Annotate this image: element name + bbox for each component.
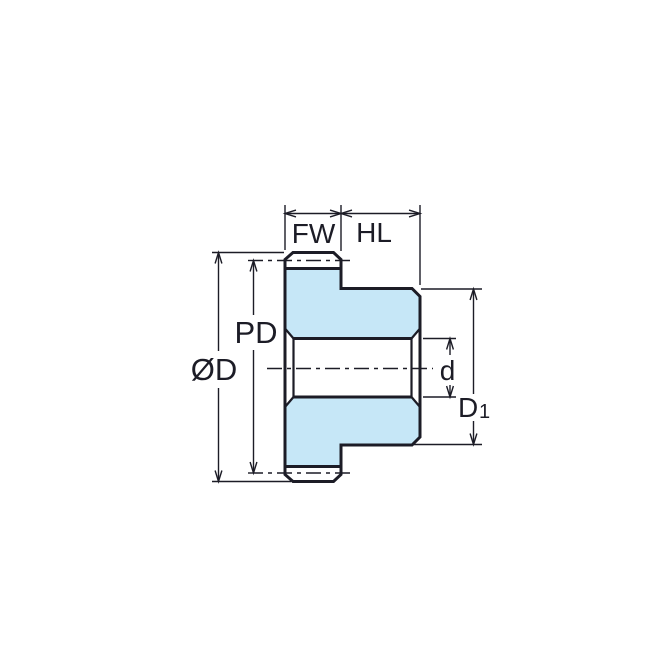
gear-cross-section <box>248 253 433 482</box>
gear-upper-body-fill <box>285 269 420 339</box>
label-fw: FW <box>292 218 336 249</box>
gear-dimension-diagram: FW HL ØD PD d D 1 <box>0 0 670 670</box>
label-od: ØD <box>191 352 238 387</box>
bore <box>285 329 420 408</box>
dimension-d: d <box>423 339 456 398</box>
dimension-pd: PD <box>234 261 277 474</box>
gear-lower-body-fill <box>285 397 420 467</box>
label-d: d <box>440 355 456 386</box>
dimension-od: ØD <box>191 253 291 482</box>
label-pd: PD <box>234 315 277 350</box>
label-d1-subscript: 1 <box>479 401 490 423</box>
label-hl: HL <box>356 217 392 248</box>
label-d1-base: D <box>458 392 478 423</box>
diagram-svg: FW HL ØD PD d D 1 <box>0 0 670 670</box>
